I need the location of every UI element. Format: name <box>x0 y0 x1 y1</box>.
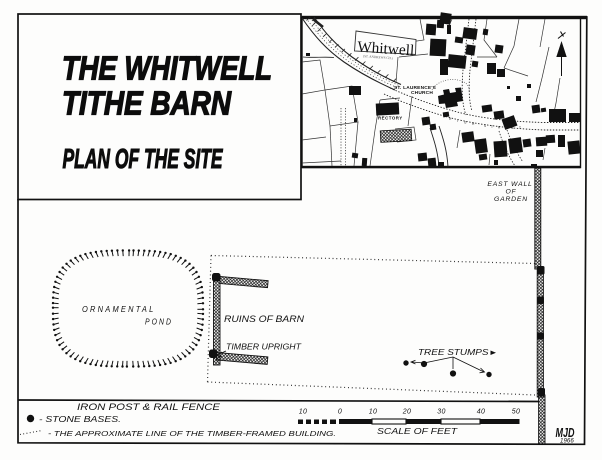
svg-text:TREE STUMPS: TREE STUMPS <box>418 348 489 357</box>
svg-text:30: 30 <box>437 409 446 416</box>
svg-text:10: 10 <box>369 409 378 416</box>
svg-text:- THE APPROXIMATE LINE OF THE: - THE APPROXIMATE LINE OF THE TIMBER-FRA… <box>48 429 336 438</box>
svg-text:EAST WALL: EAST WALL <box>487 181 532 188</box>
svg-text:T: T <box>491 125 493 129</box>
svg-text:TITHE BARN: TITHE BARN <box>62 86 232 123</box>
svg-text:I: I <box>457 119 458 123</box>
svg-text:SCALE OF FEET: SCALE OF FEET <box>377 426 458 436</box>
svg-text:E: E <box>512 126 514 130</box>
svg-text:OF: OF <box>505 189 516 196</box>
svg-text:RECTORY: RECTORY <box>378 116 403 121</box>
svg-text:POND: POND <box>145 318 173 327</box>
svg-text:0: 0 <box>338 409 342 416</box>
svg-text:T: T <box>519 126 521 130</box>
svg-text:- STONE BASES.: - STONE BASES. <box>39 415 121 424</box>
svg-text:RUINS OF BARN: RUINS OF BARN <box>224 314 305 324</box>
svg-text:S: S <box>484 124 486 128</box>
svg-text:GARDEN: GARDEN <box>494 196 528 203</box>
svg-text:THE WHITWELL: THE WHITWELL <box>62 51 272 88</box>
svg-text:TIMBER UPRIGHT: TIMBER UPRIGHT <box>226 343 302 352</box>
svg-text:IRON POST & RAIL FENCE: IRON POST & RAIL FENCE <box>77 402 221 413</box>
svg-text:PLAN OF THE SITE: PLAN OF THE SITE <box>63 143 224 174</box>
svg-text:1966: 1966 <box>560 438 574 445</box>
svg-text:ST. LAURENCE'S: ST. LAURENCE'S <box>394 85 437 91</box>
svg-text:E: E <box>505 126 507 130</box>
svg-text:CHURCH: CHURCH <box>411 90 433 96</box>
svg-text:20: 20 <box>402 409 412 416</box>
svg-text:40: 40 <box>477 409 486 416</box>
svg-text:10: 10 <box>299 409 308 416</box>
svg-text:50: 50 <box>512 409 521 416</box>
svg-text:ORNAMENTAL: ORNAMENTAL <box>82 305 156 314</box>
